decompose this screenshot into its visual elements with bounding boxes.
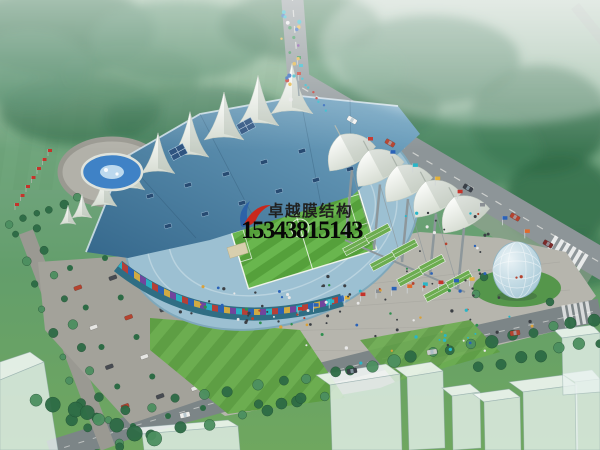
stadium-aerial-rendering: 卓越膜结构 15343815143 — [0, 0, 600, 450]
fountain — [82, 154, 142, 190]
rendering-scene — [0, 0, 600, 450]
